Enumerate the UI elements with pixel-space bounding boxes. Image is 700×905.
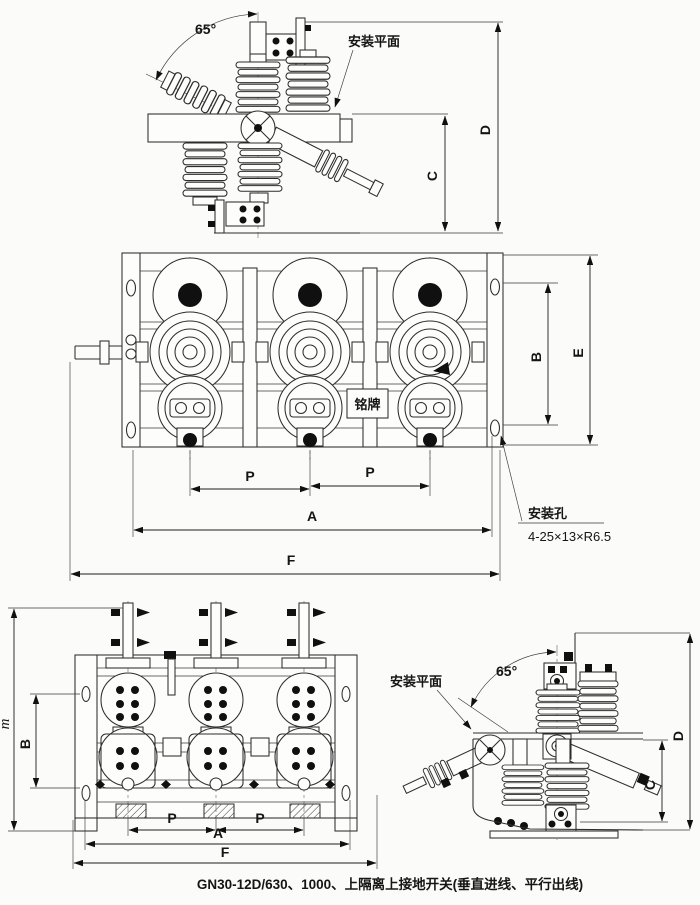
mounting-plane-label: 安装平面 xyxy=(348,34,400,49)
dim-f-label-front: F xyxy=(221,844,230,860)
dim-a-label-front: A xyxy=(213,825,223,841)
dim-b-label-front: B xyxy=(17,739,33,749)
dim-f-label: F xyxy=(287,552,296,568)
dim-a-label: A xyxy=(307,508,317,524)
plan-view: 铭牌 B E 安装孔 4-25×13×R6.5 P P A F xyxy=(70,253,611,581)
dim-e-label: E xyxy=(570,348,586,357)
front-view: m B P P A F xyxy=(0,601,377,869)
dim-b-label: B xyxy=(528,352,544,362)
dim-p1-label: P xyxy=(245,468,254,484)
side-view-bottom: 65° 安装平面 xyxy=(390,633,690,840)
angle-label: 65° xyxy=(195,21,216,37)
dim-p2-label-front: P xyxy=(255,810,264,826)
mounting-plane-label-2: 安装平面 xyxy=(390,674,442,689)
dim-p1-label-front: P xyxy=(167,810,176,826)
caption: GN30-12D/630、1000、上隔离上接地开关(垂直进线、平行出线) xyxy=(197,876,583,892)
mounting-hole-spec: 4-25×13×R6.5 xyxy=(528,529,611,544)
angle-label-2: 65° xyxy=(496,663,517,679)
drawing-sheet: 65° xyxy=(0,0,700,905)
mounting-hole-label: 安装孔 xyxy=(528,506,567,521)
dim-c-label: C xyxy=(424,171,440,181)
dim-d-label: D xyxy=(477,125,493,135)
technical-drawing: 65° xyxy=(0,0,700,905)
dim-m-label: m xyxy=(0,718,13,729)
dim-c-label-2: C xyxy=(642,780,658,790)
dim-d-label-2: D xyxy=(670,731,686,741)
nameplate: 铭牌 xyxy=(354,397,380,412)
side-view-top: 65° xyxy=(146,12,503,238)
dim-p2-label: P xyxy=(365,464,374,480)
